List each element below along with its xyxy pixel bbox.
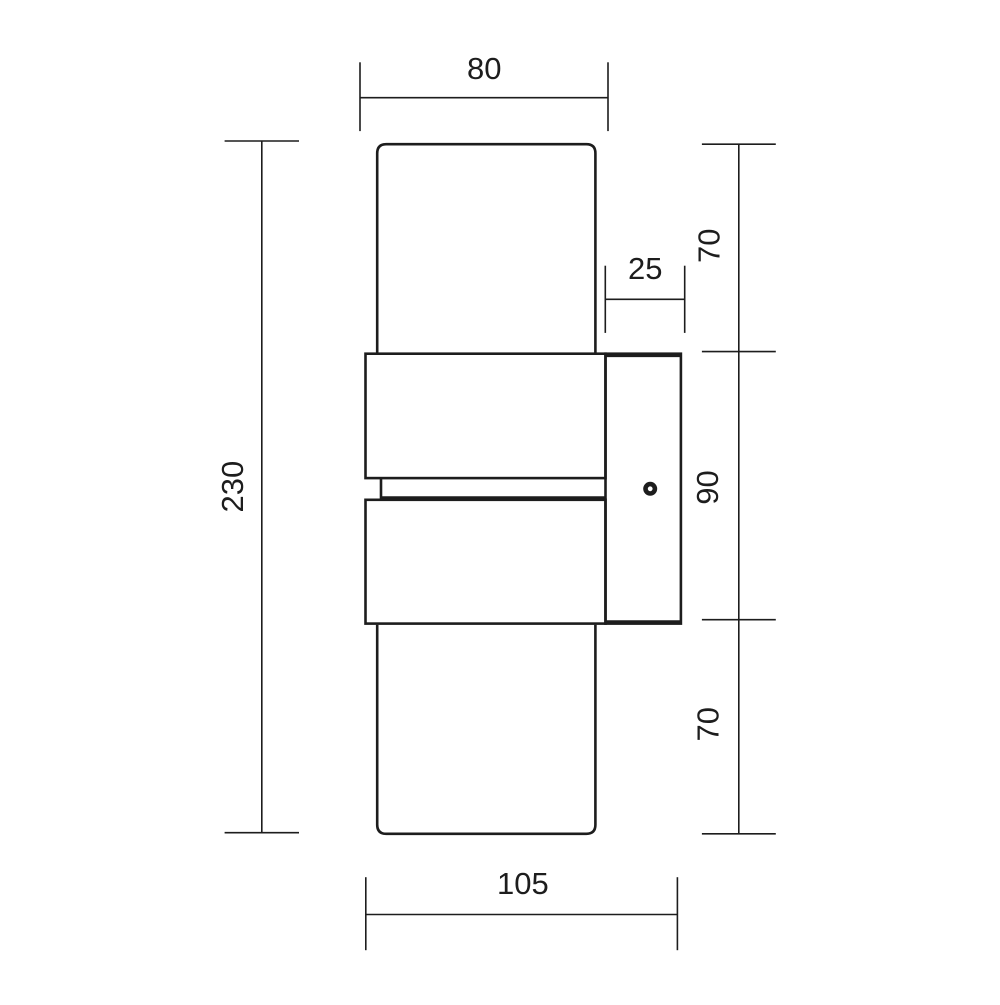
svg-text:70: 70 [692, 229, 727, 263]
svg-text:230: 230 [215, 461, 250, 513]
svg-text:25: 25 [628, 251, 662, 286]
svg-text:105: 105 [497, 866, 549, 901]
svg-text:70: 70 [691, 707, 726, 741]
svg-text:80: 80 [467, 51, 501, 86]
svg-text:90: 90 [690, 470, 725, 504]
